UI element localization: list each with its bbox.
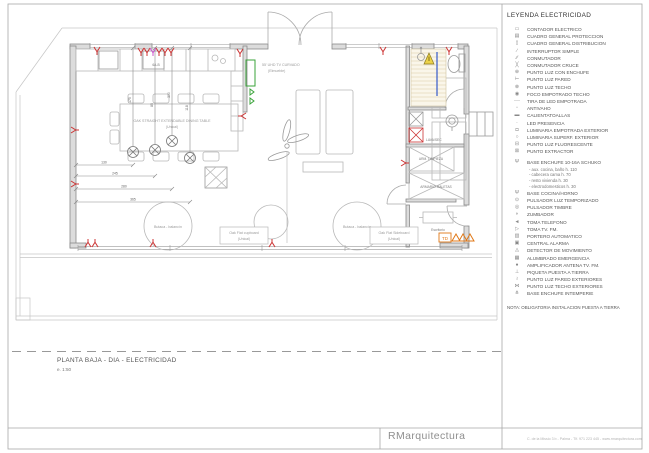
legend-item-label: ANTIVAHO [527,105,551,112]
legend-item-label: PUNTO LUZ PARED EXTERIORES [527,276,602,283]
socket-symbols [71,47,452,247]
hob-hatch [205,167,227,188]
legend-item-label: PULSADOR LUZ TEMPORIZADO [527,197,599,204]
legend-symbol-icon: ◄ [507,219,527,226]
legend-item: ╳ CONMUTADOR CRUCE [507,62,641,69]
legend-item-label: ALUMBRADO EMERGENCIA [527,255,590,262]
legend-symbol-icon: ∕∕ [507,55,527,62]
tv-point-symbol [250,98,254,104]
legend-symbol-icon: ⊥ [507,269,527,276]
ceiling-fan [267,119,309,243]
legend-item-label: LUMINARIA SUPERF. EXTERIOR [527,134,599,141]
legend-symbol-icon: ▷ [507,226,527,233]
legend-item: ▦ ALUMBRADO EMERGENCIA [507,254,641,261]
legend-symbol-icon: ▫ [507,105,527,112]
sideboard-box: Oak Flat Sideboard (Unical) [370,227,418,244]
legend-symbol-icon: ⋈ [507,283,527,290]
legend-item-label: BASE ENCHUFE INTEMPERIE [527,290,593,297]
legend-item: ◘ LUMINARIA EMPOTRADA EXTERIOR [507,127,641,134]
svg-text:TD: TD [442,236,449,241]
legend-item-label: PUNTO LUZ TECHO [527,84,571,91]
legend-item-label: CUADRO GENERAL PROTECCION [527,33,603,40]
legend-item-label: BASE ENCHUFE 10-16A SCHUKO [527,159,601,166]
legend-item-label: ZUMBADOR [527,211,554,218]
legend-item-label: PUNTO LUZ CON ENCHUFE [527,69,589,76]
legend-item: ◄ TOMA TELEFONO [507,219,641,226]
legend-symbol-icon: ◉ [507,91,527,98]
legend-item-label: DETECTOR DE MOVIMIENTO [527,247,592,254]
legend-items: ▭ CONTADOR ELECTRICO ▤ CUADRO GENERAL PR… [507,26,641,298]
pendant-lights [128,136,196,164]
svg-text:Oak Flat cupboard: Oak Flat cupboard [229,231,259,235]
desk-label: Escritorio [431,228,445,232]
legend-symbol-icon: ▭ [507,26,527,33]
svg-text:(Unical): (Unical) [388,237,400,241]
legend-item: Ψ BASE ENCHUFE 10-16A SCHUKO - aux. coci… [507,159,641,189]
legend-item-label: TOMA TELEFONO [527,219,567,226]
dim-h2: 245 [112,172,118,176]
legend-item-label: BASE COCINA/HORNO [527,190,578,197]
legend-item: ◉ FOCO EMPOTRADO TECHO [507,91,641,98]
legend-symbol-icon: ▯ [507,40,527,47]
legend-item-label: CENTRAL ALARMA [527,240,569,247]
laundry-label: LAVA/SEC [426,138,442,142]
closet1-label: ARM. LIMPIEZA [419,157,444,161]
legend-item: ▯ CUADRO GENERAL DISTRIBUCION [507,40,641,47]
dim-v3: 300 [167,92,171,98]
tv-point-symbol [250,89,254,95]
legend-item: ⊕ PUNTO LUZ CON ENCHUFE [507,69,641,76]
legend-item-label: PUNTO EXTRACTOR [527,148,573,155]
legend-item: ▭ CONTADOR ELECTRICO [507,26,641,33]
legend-item-label: CONMUTADOR [527,55,561,62]
dim-h3: 280 [121,185,127,189]
legend-item: ▥ PORTERO AUTOMATICO [507,233,641,240]
dim-v1: 175 [128,97,132,103]
legend-symbol-icon: ⊟ [507,141,527,148]
dim-v4: 118 [185,105,189,111]
legend-symbol-icon: ▣ [507,240,527,247]
tv-sublabel: (Elmueble) [268,69,285,73]
legend-symbol-icon: ● [507,262,527,269]
bathroom [411,47,465,131]
tv-label: 55' UHD TV CURVADO [262,63,300,67]
legend-item: Ψ BASE COCINA/HORNO [507,190,641,197]
intemperie-symbols [452,234,474,241]
legend-symbol-icon: · [507,120,527,127]
legend-item: ○ LUMINARIA SUPERF. EXTERIOR [507,134,641,141]
dim-h4: 365 [130,198,136,202]
legend-item-label: CALIENTATOALLAS [527,112,570,119]
legend-item-label: PUNTO LUZ PARED [527,76,571,83]
legend-symbol-icon: ⊠ [507,148,527,155]
legend-item-label: INTERRUPTOR SIMPLE [527,48,579,55]
studio-logo: RMarquitectura [388,430,465,442]
legend-item: ▷ TOMA TV. FM. [507,226,641,233]
legend-symbol-icon: ▤ [507,33,527,40]
coffee-table [303,162,343,172]
legend-item: ≀ PUNTO LUZ PARED EXTERIORES [507,276,641,283]
legend-item-label: TIRA DE LED EMPOTRADA [527,98,587,105]
legend-symbol-icon: ╳ [507,62,527,69]
legend-item-label: PIQUETA PUESTA A TIERRA [527,269,589,276]
legend-item-label: PUNTO LUZ FLUORESCENTE [527,141,593,148]
legend-item: ⊟ PUNTO LUZ FLUORESCENTE [507,141,641,148]
legend-symbol-icon: ▬ [507,112,527,119]
legend-item: ● AMPLIFICADOR ANTENA TV. FM. [507,262,641,269]
legend-item: · LED PRESENCIA [507,119,641,126]
legend-symbol-icon: ≀ [507,276,527,283]
legend-note: NOTA: OBLIGATORIA INSTALACION PUESTA A T… [507,305,641,310]
legend-item: ⋈ PUNTO LUZ TECHO EXTERIORES [507,283,641,290]
washer-dryer [409,112,423,142]
plan-title: PLANTA BAJA - DIA - ELECTRICIDAD [57,357,177,364]
legend-symbol-icon: ▦ [507,255,527,262]
sink [446,115,458,131]
td-box: TD [439,233,451,242]
legend-item: ▬ CALIENTATOALLAS [507,112,641,119]
legend-item-label: FOCO EMPOTRADO TECHO [527,91,590,98]
legend-item: ┄┄ TIRA DE LED EMPOTRADA [507,98,641,105]
legend-symbol-icon: ◎ [507,204,527,211]
legend-symbol-icon: ◗ [507,211,527,218]
legend-symbol-icon: ◘ [507,127,527,134]
armchair-right-label: Butaca - balancín [343,225,371,229]
studio-contact: C. de la Missio 3 b - Palma - Tlf. 971 2… [527,437,642,441]
legend-symbol-icon: ┄┄ [507,98,527,105]
legend-symbol-icon: ⋔ [507,290,527,297]
legend-item-label: LUMINARIA EMPOTRADA EXTERIOR [527,127,608,134]
legend-subitems: - aux. cocina, baño h. 110- cabecera cam… [529,167,641,190]
legend-item-label: PUNTO LUZ TECHO EXTERIORES [527,283,603,290]
legend-symbol-icon: ⊢ [507,76,527,83]
legend-item: ⊗ PUNTO LUZ TECHO [507,84,641,91]
legend-symbol-icon: ◬ [507,247,527,254]
dim-v2: 85 [150,103,154,107]
legend-item-label: PULSADOR TIMBRE [527,204,572,211]
legend-symbol-icon: Ψ [507,159,527,166]
cupboard-box: Oak Flat cupboard (Unical) [220,227,268,244]
toilet [448,54,465,73]
legend: LEYENDA ELECTRICIDAD ▭ CONTADOR ELECTRIC… [507,12,641,310]
socket-tag: 6A-B [152,63,160,67]
legend-item-label: AMPLIFICADOR ANTENA TV. FM. [527,262,599,269]
closets [409,147,464,199]
drawing-sheet: OAK STRAIGHT EXTENDABLE DINING TABLE (Un… [0,0,649,453]
legend-item-label: PORTERO AUTOMATICO [527,233,582,240]
legend-item: ∕∕ CONMUTADOR [507,55,641,62]
legend-symbol-icon: ⊗ [507,84,527,91]
legend-symbol-icon: Ψ [507,190,527,197]
legend-item: ⊠ PUNTO EXTRACTOR [507,148,641,155]
legend-item: ▣ CENTRAL ALARMA [507,240,641,247]
dim-h1: 130 [101,161,107,165]
legend-item: ⊙ PULSADOR LUZ TEMPORIZADO [507,197,641,204]
legend-item: ◗ ZUMBADOR [507,211,641,218]
svg-text:Oak Flat Sideboard: Oak Flat Sideboard [379,231,410,235]
svg-text:(Unical): (Unical) [238,237,250,241]
closet2-label: ARMARIO MALETAS [420,185,452,189]
legend-item: ◎ PULSADOR TIMBRE [507,204,641,211]
legend-item-label: LED PRESENCIA [527,120,565,127]
legend-item: ⋔ BASE ENCHUFE INTEMPERIE [507,290,641,297]
legend-item-label: CONMUTADOR CRUCE [527,62,579,69]
legend-item-label: TOMA TV. FM. [527,226,558,233]
legend-symbol-icon: ▥ [507,233,527,240]
legend-item: ∕ INTERRUPTOR SIMPLE [507,48,641,55]
legend-item: ⊢ PUNTO LUZ PARED [507,76,641,83]
entry-desk [419,212,457,223]
lounger [326,90,353,154]
legend-item-label: CONTADOR ELECTRICO [527,26,582,33]
legend-symbol-icon: ∕ [507,48,527,55]
armchair-left-label: Butaca - balancín [154,225,182,229]
title-block: PLANTA BAJA - DIA - ELECTRICIDAD e. 1:50 [57,357,177,372]
legend-symbol-icon: ○ [507,134,527,141]
plan-scale: e. 1:50 [57,367,177,372]
legend-item: ⊥ PIQUETA PUESTA A TIERRA [507,269,641,276]
legend-title: LEYENDA ELECTRICIDAD [507,12,641,19]
legend-symbol-icon: ⊙ [507,197,527,204]
legend-item: ▤ CUADRO GENERAL PROTECCION [507,33,641,40]
title-divider [12,351,501,352]
legend-item: ◬ DETECTOR DE MOVIMIENTO [507,247,641,254]
legend-item: ▫ ANTIVAHO [507,105,641,112]
legend-item-label: CUADRO GENERAL DISTRIBUCION [527,40,606,47]
lounger [296,90,320,154]
